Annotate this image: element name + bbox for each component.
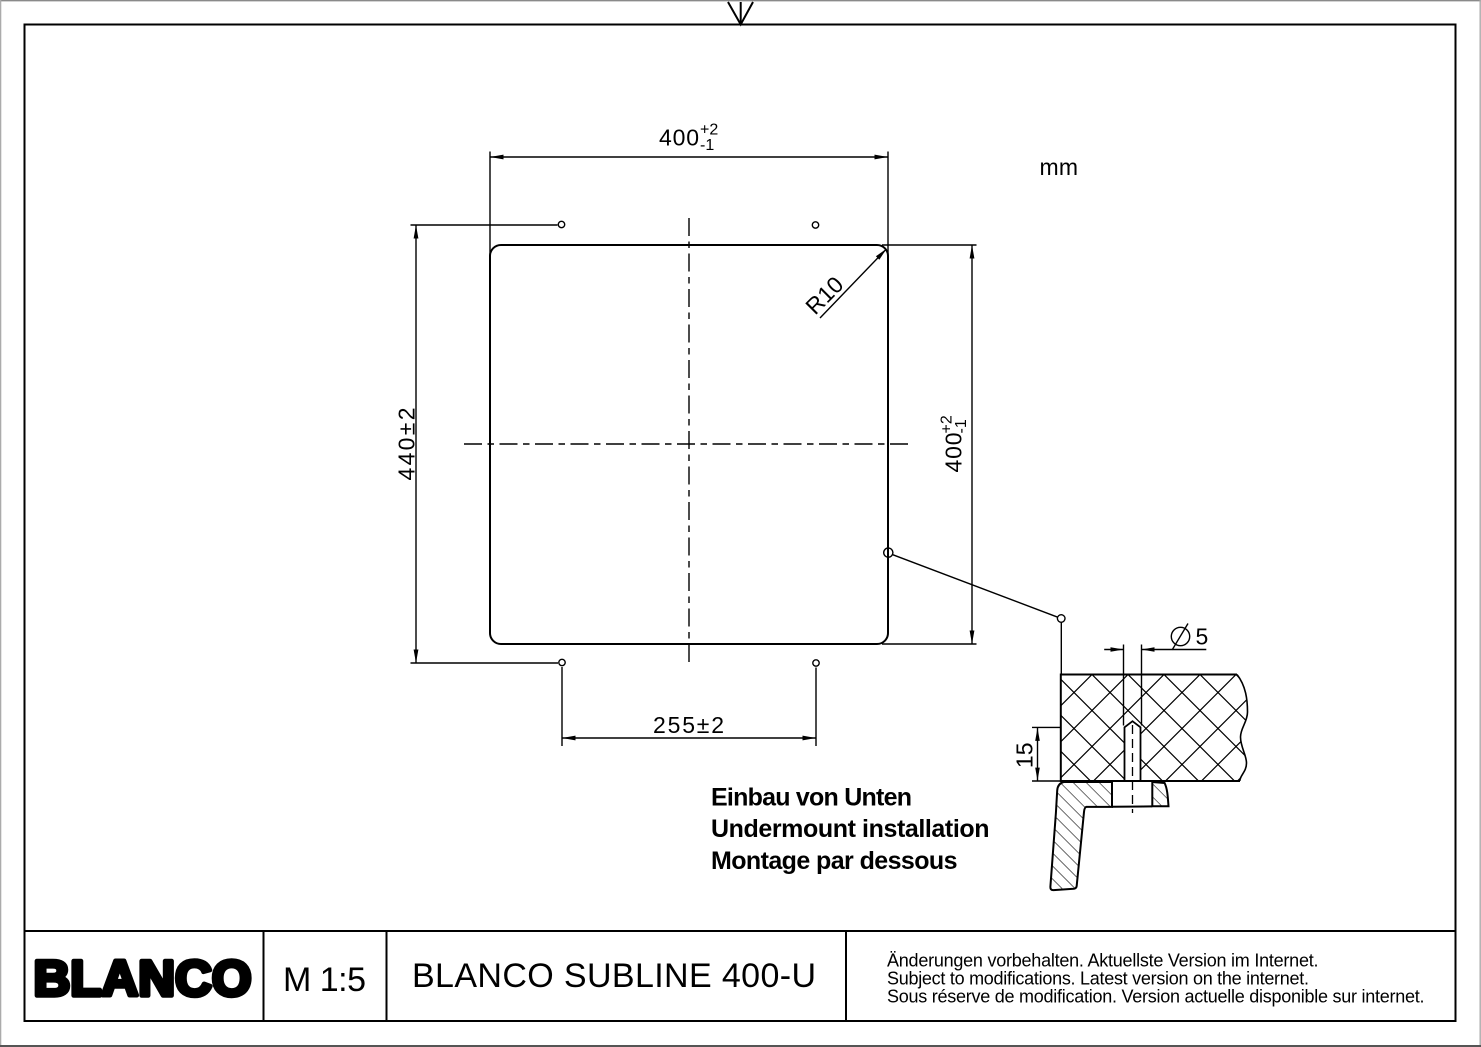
svg-text:440±2: 440±2 — [394, 408, 420, 481]
svg-text:M 1:5: M 1:5 — [283, 961, 366, 999]
svg-text:BLANCO SUBLINE 400-U: BLANCO SUBLINE 400-U — [412, 957, 816, 995]
svg-text:Änderungen vorbehalten. Aktuel: Änderungen vorbehalten. Aktuellste Versi… — [887, 951, 1319, 971]
svg-text:R10: R10 — [800, 271, 848, 319]
svg-text:Sous réserve de modification.: Sous réserve de modification. Version ac… — [887, 987, 1425, 1007]
svg-text:mm: mm — [1040, 154, 1079, 180]
svg-text:400: 400 — [659, 125, 699, 151]
svg-text:5: 5 — [1196, 624, 1209, 650]
svg-text:255±2: 255±2 — [653, 712, 724, 738]
svg-text:-1: -1 — [700, 137, 714, 154]
svg-text:Undermount installation: Undermount installation — [711, 815, 990, 843]
svg-text:15: 15 — [1012, 743, 1038, 769]
svg-text:-1: -1 — [953, 419, 970, 433]
svg-text:BLANCO: BLANCO — [34, 951, 252, 1007]
svg-text:Einbau von Unten: Einbau von Unten — [711, 784, 912, 812]
svg-text:Montage par dessous: Montage par dessous — [711, 847, 958, 875]
svg-text:400: 400 — [941, 433, 967, 473]
